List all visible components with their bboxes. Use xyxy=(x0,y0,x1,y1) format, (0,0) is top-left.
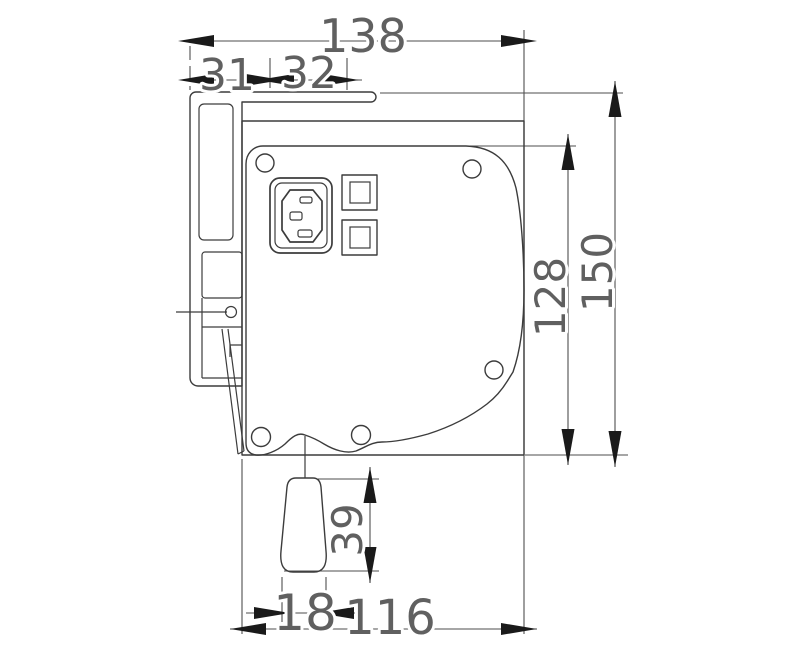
arrow-128-bottom xyxy=(562,429,575,465)
switch-top-inner xyxy=(350,182,370,203)
dim-handle-length-label: 39 xyxy=(323,503,372,556)
arrow-138-right xyxy=(501,35,537,47)
screw-hole-top-right xyxy=(463,160,481,178)
screen-fabric-strip xyxy=(222,329,244,454)
bracket-screw-hole xyxy=(226,307,237,318)
screw-hole-bottom-right xyxy=(485,361,503,379)
dim-overall-height-label: 150 xyxy=(573,232,622,312)
arrow-150-bottom xyxy=(609,431,622,467)
dim-handle-tip-width-label: 18 xyxy=(273,584,337,642)
power-pin-bottom xyxy=(298,230,312,237)
technical-drawing-page: 138 31 32 150 128 39 18 116 xyxy=(0,0,800,650)
power-inlet xyxy=(270,178,332,253)
switch-top-outer xyxy=(342,175,377,210)
control-switches xyxy=(342,175,377,255)
dim-face-height-label: 128 xyxy=(526,257,575,337)
technical-drawing: 138 31 32 150 128 39 18 116 xyxy=(0,0,800,650)
arrow-116-left xyxy=(230,623,266,635)
power-pin-top xyxy=(300,197,312,203)
arrow-116-right xyxy=(501,623,537,635)
dimension-labels: 138 31 32 150 128 39 18 116 xyxy=(199,9,622,646)
bracket-slot xyxy=(199,104,233,240)
rear-case-outline xyxy=(242,121,524,455)
rear-case xyxy=(242,121,524,455)
arrow-138-left xyxy=(178,35,214,47)
power-pin-middle xyxy=(290,212,302,220)
arrow-128-top xyxy=(562,134,575,170)
screw-hole-bottom-mid xyxy=(352,426,371,445)
pull-handle xyxy=(281,436,327,572)
bracket-outline xyxy=(190,92,376,386)
screw-hole-bottom-left xyxy=(252,428,271,447)
screw-hole-top-left xyxy=(256,154,274,172)
dim-bracket-offset-label: 31 xyxy=(199,50,255,101)
arrow-39-top xyxy=(364,467,377,503)
switch-bottom-outer xyxy=(342,220,377,255)
bracket-lower-slot xyxy=(202,252,242,298)
pull-handle-outline xyxy=(281,478,327,572)
dim-bracket-depth-label: 32 xyxy=(281,48,337,99)
switch-bottom-inner xyxy=(350,227,370,248)
arrow-150-top xyxy=(609,81,622,117)
dim-body-width-label: 116 xyxy=(344,590,436,646)
